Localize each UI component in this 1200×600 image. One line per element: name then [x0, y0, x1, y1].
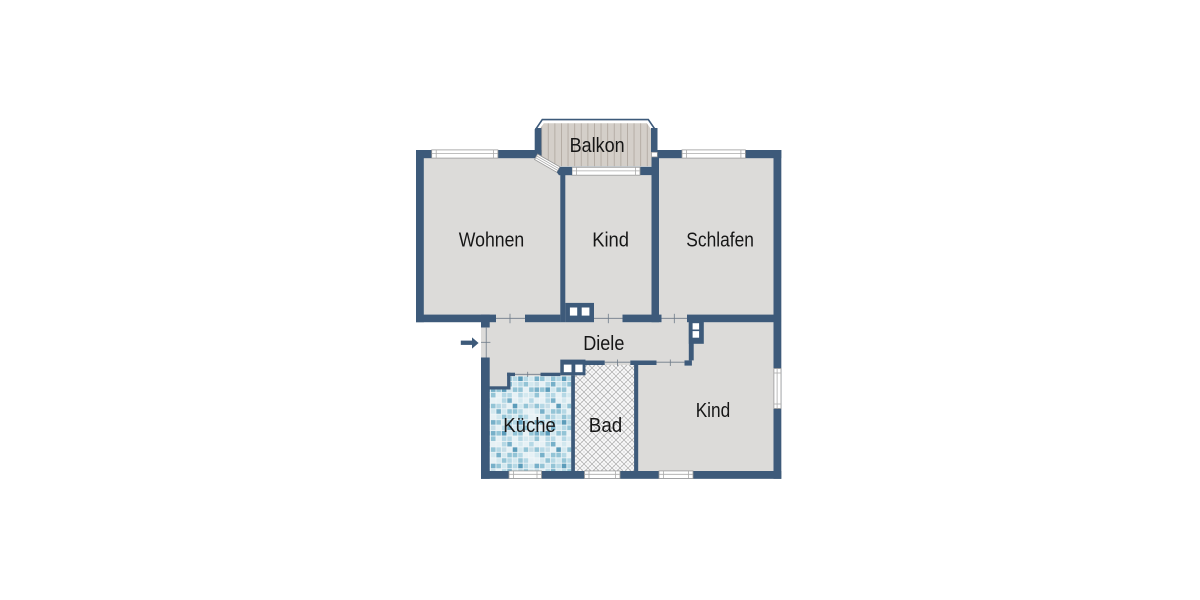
svg-text:Balkon: Balkon — [570, 134, 625, 157]
svg-text:Kind: Kind — [696, 399, 731, 422]
svg-text:Bad: Bad — [589, 414, 622, 437]
svg-text:Küche: Küche — [503, 414, 556, 437]
svg-text:Wohnen: Wohnen — [459, 229, 524, 252]
svg-text:Schlafen: Schlafen — [686, 229, 754, 252]
svg-text:Diele: Diele — [583, 332, 624, 355]
svg-text:Kind: Kind — [592, 229, 629, 252]
